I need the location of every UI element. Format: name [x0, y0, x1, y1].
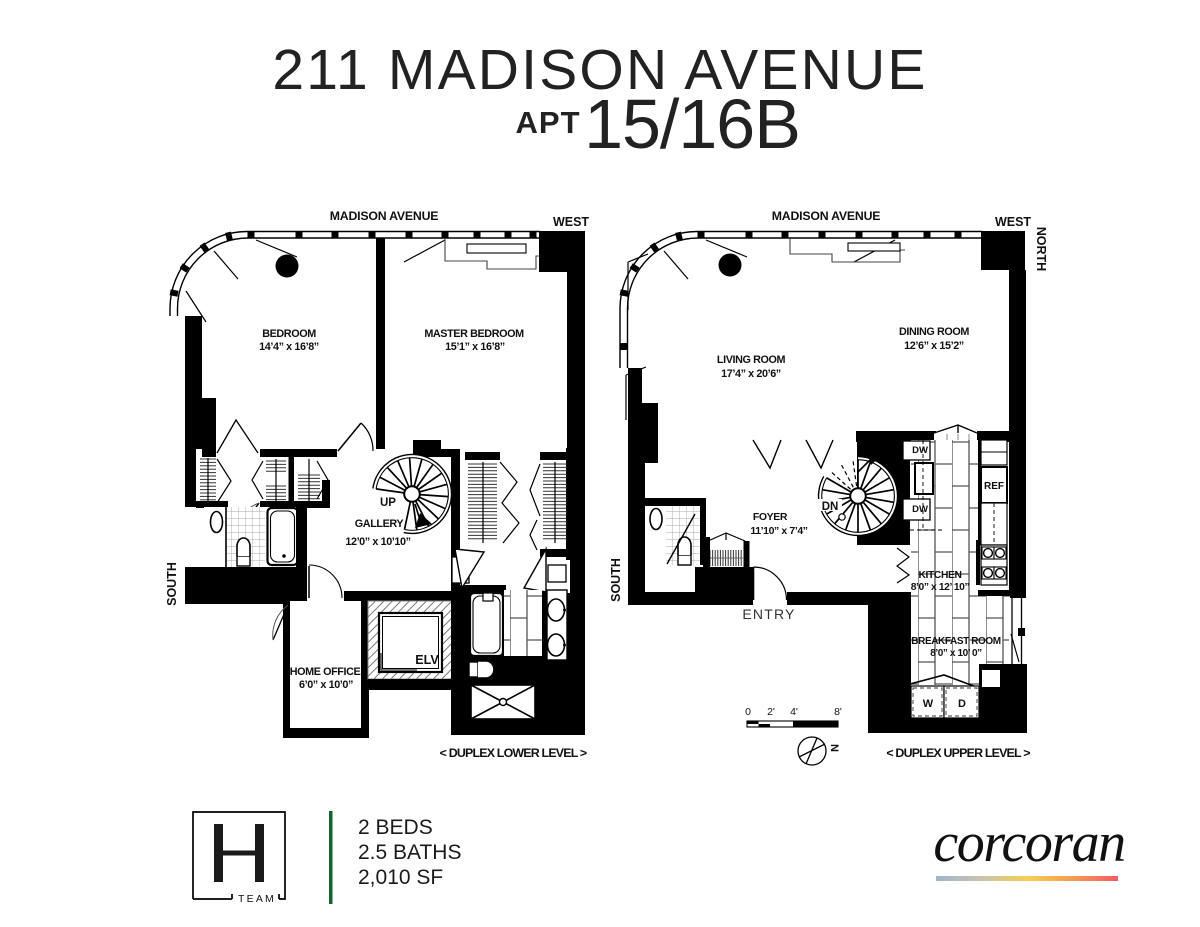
svg-text:2': 2'	[767, 706, 775, 718]
svg-text:NORTH: NORTH	[1034, 227, 1048, 271]
svg-text:GALLERY: GALLERY	[355, 518, 405, 530]
svg-text:ENTRY: ENTRY	[742, 606, 795, 622]
svg-text:MADISON AVENUE: MADISON AVENUE	[772, 209, 881, 223]
svg-text:< DUPLEX LOWER LEVEL >: < DUPLEX LOWER LEVEL >	[440, 746, 587, 760]
svg-text:SOUTH: SOUTH	[165, 562, 179, 606]
svg-text:APT: APT	[516, 105, 581, 140]
svg-text:14’4” x 16’8”: 14’4” x 16’8”	[259, 341, 319, 353]
svg-text:4': 4'	[790, 706, 798, 718]
svg-text:17’4” x 20’6”: 17’4” x 20’6”	[721, 368, 781, 380]
svg-text:FOYER: FOYER	[753, 511, 788, 523]
svg-text:6’0” x 10’0”: 6’0” x 10’0”	[299, 679, 353, 691]
svg-text:12’6” x 15’2”: 12’6” x 15’2”	[904, 340, 964, 352]
svg-text:8’0” x 10’ 0”: 8’0” x 10’ 0”	[930, 648, 982, 659]
svg-text:TEAM: TEAM	[238, 893, 276, 905]
svg-text:WEST: WEST	[995, 215, 1031, 229]
svg-text:MADISON AVENUE: MADISON AVENUE	[330, 209, 439, 223]
svg-text:ELV: ELV	[415, 653, 439, 667]
svg-text:0: 0	[745, 706, 751, 718]
svg-text:HOME OFFICE: HOME OFFICE	[290, 666, 361, 678]
svg-text:DINING ROOM: DINING ROOM	[899, 326, 969, 338]
svg-text:W: W	[923, 698, 934, 710]
svg-text:15/16B: 15/16B	[584, 85, 800, 163]
svg-text:12’0” x 10’10”: 12’0” x 10’10”	[345, 536, 410, 548]
svg-text:N: N	[828, 744, 840, 752]
svg-text:15’1” x 16’8”: 15’1” x 16’8”	[445, 341, 505, 353]
svg-text:BEDROOM: BEDROOM	[262, 328, 316, 340]
svg-text:KITCHEN: KITCHEN	[919, 570, 962, 581]
svg-text:DW: DW	[912, 445, 928, 456]
svg-text:DN: DN	[822, 501, 839, 513]
svg-text:D: D	[958, 698, 966, 710]
svg-text:DW: DW	[912, 504, 928, 515]
svg-text:LIVING ROOM: LIVING ROOM	[717, 354, 786, 366]
svg-text:UP: UP	[380, 497, 396, 509]
svg-text:2,010 SF: 2,010 SF	[358, 866, 443, 889]
svg-text:BREAKFAST ROOM: BREAKFAST ROOM	[911, 636, 1000, 647]
svg-text:SOUTH: SOUTH	[609, 558, 623, 602]
svg-text:REF: REF	[984, 481, 1004, 492]
svg-text:2.5 BATHS: 2.5 BATHS	[358, 841, 461, 864]
svg-text:WEST: WEST	[553, 215, 589, 229]
svg-text:2 BEDS: 2 BEDS	[358, 816, 433, 839]
svg-text:8': 8'	[834, 706, 842, 718]
svg-text:11’10” x 7’4”: 11’10” x 7’4”	[750, 525, 807, 537]
svg-text:corcoran: corcoran	[933, 812, 1124, 874]
svg-text:< DUPLEX UPPER LEVEL >: < DUPLEX UPPER LEVEL >	[886, 746, 1030, 760]
svg-text:8’0” x 12’ 10”: 8’0” x 12’ 10”	[911, 582, 970, 593]
svg-text:MASTER BEDROOM: MASTER BEDROOM	[424, 328, 524, 340]
